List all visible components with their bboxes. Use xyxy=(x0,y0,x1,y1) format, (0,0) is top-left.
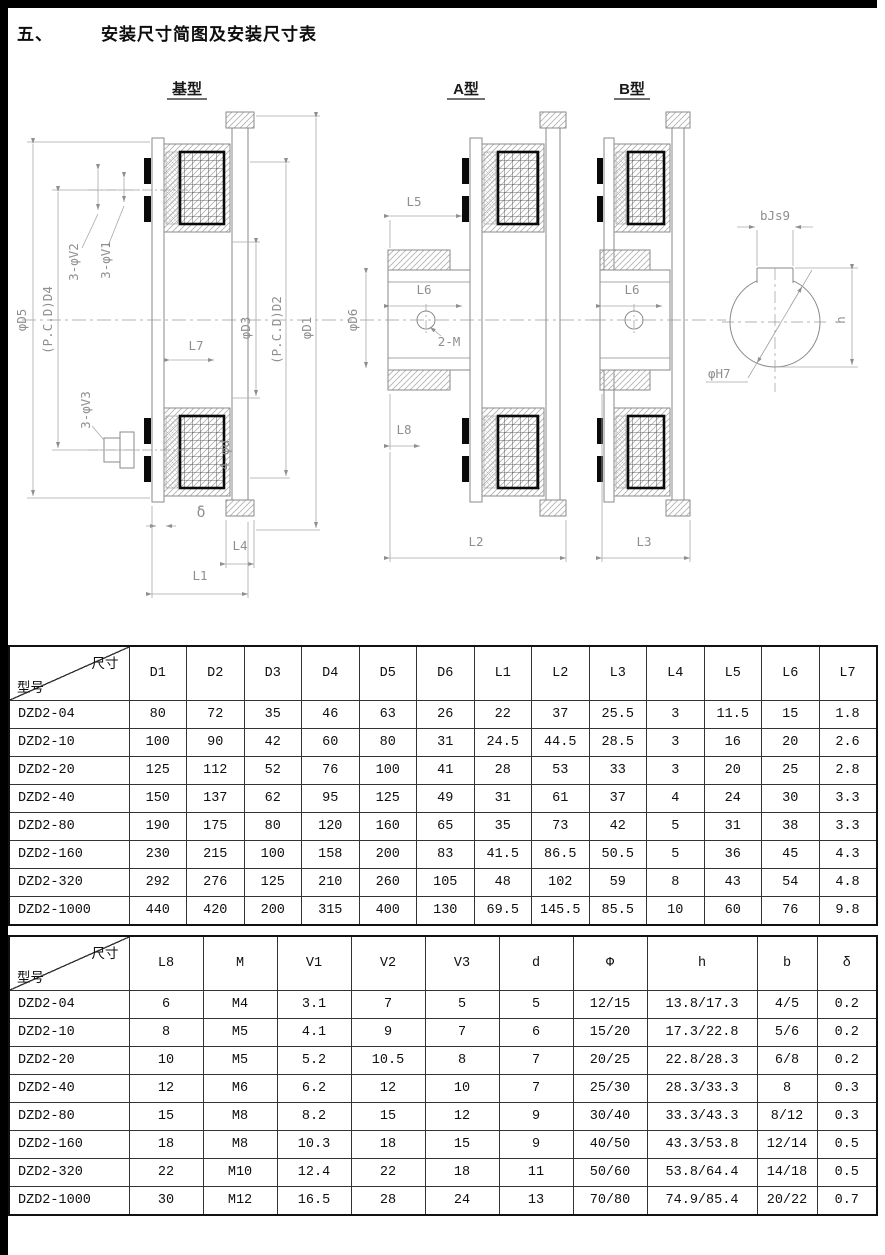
corner-label-size: 尺寸 xyxy=(92,942,119,962)
value-cell: 125 xyxy=(359,785,417,813)
a-coil-top xyxy=(498,152,538,224)
value-cell: 65 xyxy=(417,813,475,841)
value-cell: 100 xyxy=(244,841,302,869)
value-cell: 3 xyxy=(647,701,705,729)
value-cell: 11 xyxy=(499,1159,573,1187)
value-cell: 3.1 xyxy=(277,991,351,1019)
value-cell: M5 xyxy=(203,1047,277,1075)
value-cell: 22 xyxy=(129,1159,203,1187)
value-cell: M4 xyxy=(203,991,277,1019)
column-header: D2 xyxy=(187,646,245,701)
value-cell: 0.2 xyxy=(817,991,877,1019)
value-cell: 37 xyxy=(532,701,590,729)
b-coil-top xyxy=(628,152,664,224)
model-cell: DZD2-40 xyxy=(9,785,129,813)
value-cell: 30/40 xyxy=(573,1103,647,1131)
value-cell: 5/6 xyxy=(757,1019,817,1047)
value-cell: 24.5 xyxy=(474,729,532,757)
column-header: L6 xyxy=(762,646,820,701)
value-cell: 7 xyxy=(499,1047,573,1075)
dim-label-L4: L4 xyxy=(232,538,247,553)
value-cell: 3 xyxy=(647,757,705,785)
value-cell: 137 xyxy=(187,785,245,813)
page: { "page": { "section_number": "五、", "tit… xyxy=(0,0,885,1255)
table-row: DZD2-16018M810.31815940/5043.3/53.812/14… xyxy=(9,1131,877,1159)
value-cell: 7 xyxy=(351,991,425,1019)
table-row: DZD2-2010M55.210.58720/2522.8/28.36/80.2 xyxy=(9,1047,877,1075)
value-cell: 37 xyxy=(589,785,647,813)
value-cell: 42 xyxy=(589,813,647,841)
value-cell: 158 xyxy=(302,841,360,869)
value-cell: M12 xyxy=(203,1187,277,1216)
dim-label-h: h xyxy=(833,316,848,324)
value-cell: 10 xyxy=(129,1047,203,1075)
a-coil-bottom xyxy=(498,416,538,488)
value-cell: 18 xyxy=(425,1159,499,1187)
value-cell: 230 xyxy=(129,841,187,869)
base-coil-top xyxy=(180,152,224,224)
column-header: D6 xyxy=(417,646,475,701)
dim-label-L7: L7 xyxy=(188,338,203,353)
value-cell: 10 xyxy=(425,1075,499,1103)
value-cell: 40/50 xyxy=(573,1131,647,1159)
value-cell: 63 xyxy=(359,701,417,729)
value-cell: 28 xyxy=(474,757,532,785)
value-cell: 90 xyxy=(187,729,245,757)
value-cell: 52 xyxy=(244,757,302,785)
value-cell: 8.2 xyxy=(277,1103,351,1131)
value-cell: 70/80 xyxy=(573,1187,647,1216)
column-header: M xyxy=(203,936,277,991)
b-flange-plate xyxy=(672,128,684,500)
value-cell: 20 xyxy=(762,729,820,757)
value-cell: 9 xyxy=(499,1131,573,1159)
model-cell: DZD2-10 xyxy=(9,1019,129,1047)
dim-label-3phiV1: 3-φV1 xyxy=(98,241,113,279)
table-row: DZD2-4012M66.21210725/3028.3/33.380.3 xyxy=(9,1075,877,1103)
value-cell: 100 xyxy=(129,729,187,757)
model-cell: DZD2-1000 xyxy=(9,897,129,926)
value-cell: 150 xyxy=(129,785,187,813)
value-cell: 18 xyxy=(129,1131,203,1159)
value-cell: 3 xyxy=(647,729,705,757)
value-cell: 50/60 xyxy=(573,1159,647,1187)
column-header: δ xyxy=(817,936,877,991)
value-cell: 25.5 xyxy=(589,701,647,729)
dim-label-phiD3: φD3 xyxy=(238,317,253,340)
value-cell: 15 xyxy=(762,701,820,729)
column-header: D3 xyxy=(244,646,302,701)
dim-label-L1: L1 xyxy=(192,568,207,583)
value-cell: 43.3/53.8 xyxy=(647,1131,757,1159)
table-row: DZD2-20125112527610041285333320252.8 xyxy=(9,757,877,785)
value-cell: 210 xyxy=(302,869,360,897)
value-cell: 10 xyxy=(647,897,705,926)
table-row: DZD2-32022M1012.422181150/6053.8/64.414/… xyxy=(9,1159,877,1187)
value-cell: 80 xyxy=(359,729,417,757)
dim-label-L6-a: L6 xyxy=(416,282,431,297)
value-cell: 26 xyxy=(417,701,475,729)
section-title: 五、安装尺寸简图及安装尺寸表 xyxy=(17,20,857,45)
value-cell: 28 xyxy=(351,1187,425,1216)
value-cell: 4.3 xyxy=(819,841,877,869)
value-cell: 5.2 xyxy=(277,1047,351,1075)
section-number: 五、 xyxy=(17,25,53,44)
value-cell: 8 xyxy=(129,1019,203,1047)
value-cell: 9.8 xyxy=(819,897,877,926)
value-cell: 17.3/22.8 xyxy=(647,1019,757,1047)
dim-label-L2: L2 xyxy=(468,534,483,549)
table-row: DZD2-1602302151001582008341.586.550.5536… xyxy=(9,841,877,869)
value-cell: 6 xyxy=(129,991,203,1019)
value-cell: 160 xyxy=(359,813,417,841)
value-cell: 112 xyxy=(187,757,245,785)
value-cell: 76 xyxy=(762,897,820,926)
model-cell: DZD2-40 xyxy=(9,1075,129,1103)
type-b-title: B型 xyxy=(619,80,645,98)
value-cell: 36 xyxy=(704,841,762,869)
value-cell: 18 xyxy=(351,1131,425,1159)
dim-label-phiD5: φD5 xyxy=(14,309,29,332)
value-cell: 440 xyxy=(129,897,187,926)
value-cell: 100 xyxy=(359,757,417,785)
value-cell: M6 xyxy=(203,1075,277,1103)
column-header: L7 xyxy=(819,646,877,701)
value-cell: 48 xyxy=(474,869,532,897)
value-cell: 74.9/85.4 xyxy=(647,1187,757,1216)
dim-label-bJs9: bJs9 xyxy=(760,208,790,223)
value-cell: 20 xyxy=(704,757,762,785)
diagram-type-b: B型 L6 L3 xyxy=(592,80,726,562)
page-border-top xyxy=(0,0,877,8)
value-cell: 33 xyxy=(589,757,647,785)
value-cell: 0.3 xyxy=(817,1103,877,1131)
value-cell: 16 xyxy=(704,729,762,757)
value-cell: 2.6 xyxy=(819,729,877,757)
column-header: V3 xyxy=(425,936,499,991)
value-cell: M8 xyxy=(203,1131,277,1159)
model-cell: DZD2-04 xyxy=(9,991,129,1019)
dim-label-L3: L3 xyxy=(636,534,651,549)
value-cell: 125 xyxy=(129,757,187,785)
value-cell: 22 xyxy=(474,701,532,729)
column-header: h xyxy=(647,936,757,991)
a-flange-plate xyxy=(546,128,560,500)
value-cell: 28.5 xyxy=(589,729,647,757)
column-header: L4 xyxy=(647,646,705,701)
value-cell: 12.4 xyxy=(277,1159,351,1187)
value-cell: M5 xyxy=(203,1019,277,1047)
value-cell: 30 xyxy=(762,785,820,813)
value-cell: 400 xyxy=(359,897,417,926)
value-cell: 0.2 xyxy=(817,1019,877,1047)
model-cell: DZD2-04 xyxy=(9,701,129,729)
value-cell: 4 xyxy=(647,785,705,813)
value-cell: 54 xyxy=(762,869,820,897)
dim-label-phiD1: φD1 xyxy=(299,317,314,340)
value-cell: 49 xyxy=(417,785,475,813)
value-cell: 24 xyxy=(704,785,762,813)
value-cell: 53 xyxy=(532,757,590,785)
corner-label-size: 尺寸 xyxy=(92,652,119,672)
value-cell: 85.5 xyxy=(589,897,647,926)
column-header: D4 xyxy=(302,646,360,701)
model-cell: DZD2-80 xyxy=(9,1103,129,1131)
diagram-type-a: A型 L5 L6 φD6 2-M L8 xyxy=(345,80,600,562)
value-cell: 11.5 xyxy=(704,701,762,729)
value-cell: 13 xyxy=(499,1187,573,1216)
dim-label-4phid: 4-φd xyxy=(217,440,232,470)
value-cell: 12 xyxy=(425,1103,499,1131)
value-cell: 125 xyxy=(244,869,302,897)
dim-label-L6-b: L6 xyxy=(624,282,639,297)
table-row: DZD2-10100904260803124.544.528.5316202.6 xyxy=(9,729,877,757)
value-cell: 3.3 xyxy=(819,785,877,813)
value-cell: 61 xyxy=(532,785,590,813)
value-cell: 83 xyxy=(417,841,475,869)
corner-label-model: 型号 xyxy=(17,676,44,696)
value-cell: 3.3 xyxy=(819,813,877,841)
value-cell: 5 xyxy=(647,813,705,841)
value-cell: 0.2 xyxy=(817,1047,877,1075)
column-header: L1 xyxy=(474,646,532,701)
value-cell: 276 xyxy=(187,869,245,897)
value-cell: 130 xyxy=(417,897,475,926)
value-cell: 76 xyxy=(302,757,360,785)
value-cell: 120 xyxy=(302,813,360,841)
value-cell: 15 xyxy=(351,1103,425,1131)
value-cell: 0.5 xyxy=(817,1131,877,1159)
value-cell: 20/25 xyxy=(573,1047,647,1075)
base-flange-plate xyxy=(232,128,248,500)
table1-corner-cell: 尺寸 型号 xyxy=(9,646,129,701)
value-cell: 8 xyxy=(647,869,705,897)
value-cell: 215 xyxy=(187,841,245,869)
value-cell: 2.8 xyxy=(819,757,877,785)
value-cell: 44.5 xyxy=(532,729,590,757)
value-cell: 30 xyxy=(129,1187,203,1216)
value-cell: 95 xyxy=(302,785,360,813)
value-cell: 10.3 xyxy=(277,1131,351,1159)
value-cell: 24 xyxy=(425,1187,499,1216)
value-cell: 73 xyxy=(532,813,590,841)
value-cell: 6/8 xyxy=(757,1047,817,1075)
type-a-title: A型 xyxy=(453,80,479,98)
value-cell: 8 xyxy=(757,1075,817,1103)
diagram-shaft-section: bJs9 h φH7 xyxy=(706,208,858,392)
value-cell: 31 xyxy=(704,813,762,841)
value-cell: 38 xyxy=(762,813,820,841)
column-header: L2 xyxy=(532,646,590,701)
dim-label-pcdD2: (P.C.D)D2 xyxy=(269,296,284,364)
value-cell: 22 xyxy=(351,1159,425,1187)
dim-label-phiD6: φD6 xyxy=(345,309,360,332)
value-cell: 41 xyxy=(417,757,475,785)
value-cell: 16.5 xyxy=(277,1187,351,1216)
value-cell: 5 xyxy=(499,991,573,1019)
column-header: d xyxy=(499,936,573,991)
dim-label-2M: 2-M xyxy=(438,334,461,349)
model-cell: DZD2-1000 xyxy=(9,1187,129,1216)
value-cell: 62 xyxy=(244,785,302,813)
value-cell: 0.5 xyxy=(817,1159,877,1187)
value-cell: 59 xyxy=(589,869,647,897)
column-header: Φ xyxy=(573,936,647,991)
value-cell: 0.3 xyxy=(817,1075,877,1103)
column-header: D1 xyxy=(129,646,187,701)
value-cell: 10.5 xyxy=(351,1047,425,1075)
value-cell: 31 xyxy=(417,729,475,757)
value-cell: 5 xyxy=(647,841,705,869)
value-cell: 80 xyxy=(244,813,302,841)
model-cell: DZD2-10 xyxy=(9,729,129,757)
value-cell: 50.5 xyxy=(589,841,647,869)
dimension-table-1: 尺寸 型号 D1D2D3D4D5D6L1L2L3L4L5L6L7 DZD2-04… xyxy=(8,645,878,926)
column-header: V1 xyxy=(277,936,351,991)
model-cell: DZD2-20 xyxy=(9,1047,129,1075)
value-cell: 315 xyxy=(302,897,360,926)
table-row: DZD2-8015M88.21512930/4033.3/43.38/120.3 xyxy=(9,1103,877,1131)
value-cell: 292 xyxy=(129,869,187,897)
b-coil-bottom xyxy=(628,416,664,488)
value-cell: 7 xyxy=(499,1075,573,1103)
value-cell: 72 xyxy=(187,701,245,729)
model-cell: DZD2-320 xyxy=(9,1159,129,1187)
value-cell: 20/22 xyxy=(757,1187,817,1216)
value-cell: 7 xyxy=(425,1019,499,1047)
value-cell: 43 xyxy=(704,869,762,897)
value-cell: 13.8/17.3 xyxy=(647,991,757,1019)
dimension-table-2: 尺寸 型号 L8MV1V2V3dΦhbδ DZD2-046M43.175512/… xyxy=(8,935,878,1216)
value-cell: 200 xyxy=(359,841,417,869)
value-cell: 41.5 xyxy=(474,841,532,869)
section-title-text: 安装尺寸简图及安装尺寸表 xyxy=(101,25,317,44)
value-cell: 60 xyxy=(302,729,360,757)
dim-label-L5: L5 xyxy=(406,194,421,209)
value-cell: 22.8/28.3 xyxy=(647,1047,757,1075)
table-row: DZD2-04807235466326223725.5311.5151.8 xyxy=(9,701,877,729)
value-cell: 35 xyxy=(244,701,302,729)
value-cell: 8 xyxy=(425,1047,499,1075)
value-cell: 69.5 xyxy=(474,897,532,926)
column-header: D5 xyxy=(359,646,417,701)
table-row: DZD2-3202922761252102601054810259843544.… xyxy=(9,869,877,897)
value-cell: 60 xyxy=(704,897,762,926)
corner-label-model: 型号 xyxy=(17,966,44,986)
column-header: L8 xyxy=(129,936,203,991)
value-cell: 12 xyxy=(351,1075,425,1103)
value-cell: 190 xyxy=(129,813,187,841)
value-cell: 260 xyxy=(359,869,417,897)
model-cell: DZD2-160 xyxy=(9,1131,129,1159)
base-type-title: 基型 xyxy=(171,80,202,98)
value-cell: 0.7 xyxy=(817,1187,877,1216)
model-cell: DZD2-320 xyxy=(9,869,129,897)
column-header: L5 xyxy=(704,646,762,701)
value-cell: 15/20 xyxy=(573,1019,647,1047)
value-cell: 42 xyxy=(244,729,302,757)
value-cell: 12/14 xyxy=(757,1131,817,1159)
value-cell: 12/15 xyxy=(573,991,647,1019)
installation-diagrams: 基型 xyxy=(0,80,885,640)
column-header: V2 xyxy=(351,936,425,991)
value-cell: 105 xyxy=(417,869,475,897)
dim-label-3phiV3: 3-φV3 xyxy=(78,391,93,429)
table-row: DZD2-801901758012016065357342531383.3 xyxy=(9,813,877,841)
dim-label-phiH7: φH7 xyxy=(708,366,731,381)
value-cell: 4.8 xyxy=(819,869,877,897)
model-cell: DZD2-20 xyxy=(9,757,129,785)
dim-label-3phiV2: 3-φV2 xyxy=(66,243,81,281)
value-cell: 15 xyxy=(129,1103,203,1131)
table-row: DZD2-100044042020031540013069.5145.585.5… xyxy=(9,897,877,926)
value-cell: 9 xyxy=(351,1019,425,1047)
table-row: DZD2-108M54.197615/2017.3/22.85/60.2 xyxy=(9,1019,877,1047)
model-cell: DZD2-160 xyxy=(9,841,129,869)
value-cell: 28.3/33.3 xyxy=(647,1075,757,1103)
model-cell: DZD2-80 xyxy=(9,813,129,841)
column-header: b xyxy=(757,936,817,991)
dim-label-pcdD4: (P.C.D)D4 xyxy=(40,286,55,354)
dim-label-delta: δ xyxy=(196,503,205,521)
table-row: DZD2-100030M1216.528241370/8074.9/85.420… xyxy=(9,1187,877,1216)
value-cell: 45 xyxy=(762,841,820,869)
table-row: DZD2-046M43.175512/1513.8/17.34/50.2 xyxy=(9,991,877,1019)
diagrams-svg: 基型 xyxy=(0,80,885,640)
dim-label-L8: L8 xyxy=(396,422,411,437)
value-cell: 35 xyxy=(474,813,532,841)
value-cell: 1.8 xyxy=(819,701,877,729)
value-cell: 200 xyxy=(244,897,302,926)
value-cell: 4.1 xyxy=(277,1019,351,1047)
value-cell: 12 xyxy=(129,1075,203,1103)
value-cell: 86.5 xyxy=(532,841,590,869)
value-cell: M8 xyxy=(203,1103,277,1131)
value-cell: 53.8/64.4 xyxy=(647,1159,757,1187)
value-cell: 175 xyxy=(187,813,245,841)
value-cell: 4/5 xyxy=(757,991,817,1019)
column-header: L3 xyxy=(589,646,647,701)
value-cell: M10 xyxy=(203,1159,277,1187)
value-cell: 31 xyxy=(474,785,532,813)
value-cell: 25 xyxy=(762,757,820,785)
diagram-base-type: 基型 xyxy=(14,80,352,598)
value-cell: 5 xyxy=(425,991,499,1019)
value-cell: 25/30 xyxy=(573,1075,647,1103)
value-cell: 420 xyxy=(187,897,245,926)
value-cell: 6 xyxy=(499,1019,573,1047)
value-cell: 15 xyxy=(425,1131,499,1159)
value-cell: 8/12 xyxy=(757,1103,817,1131)
value-cell: 102 xyxy=(532,869,590,897)
table2-corner-cell: 尺寸 型号 xyxy=(9,936,129,991)
value-cell: 14/18 xyxy=(757,1159,817,1187)
value-cell: 9 xyxy=(499,1103,573,1131)
table-row: DZD2-40150137629512549316137424303.3 xyxy=(9,785,877,813)
value-cell: 33.3/43.3 xyxy=(647,1103,757,1131)
value-cell: 80 xyxy=(129,701,187,729)
value-cell: 46 xyxy=(302,701,360,729)
value-cell: 6.2 xyxy=(277,1075,351,1103)
value-cell: 145.5 xyxy=(532,897,590,926)
